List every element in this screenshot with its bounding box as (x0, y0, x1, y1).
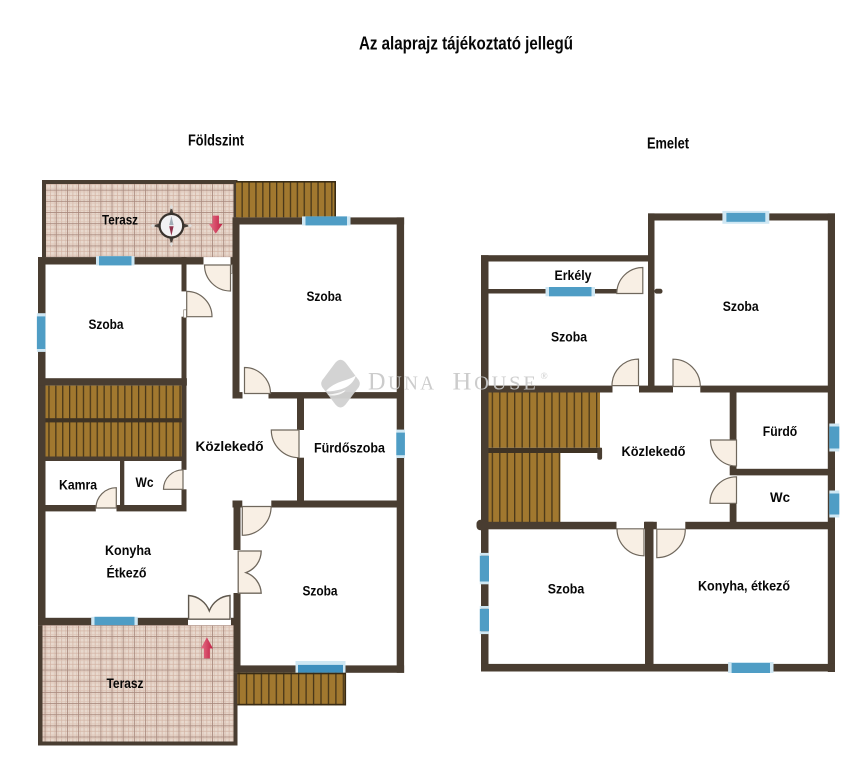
svg-text:HOUSE: HOUSE (453, 367, 539, 396)
svg-text:Kamra: Kamra (59, 477, 97, 492)
svg-text:Szoba: Szoba (307, 289, 342, 304)
svg-text:Szoba: Szoba (723, 299, 759, 314)
svg-text:Szoba: Szoba (551, 330, 587, 345)
svg-text:Szoba: Szoba (89, 317, 124, 332)
svg-text:Közlekedő: Közlekedő (622, 444, 686, 459)
svg-text:Terasz: Terasz (102, 213, 138, 228)
svg-text:Fürdőszoba: Fürdőszoba (314, 440, 385, 455)
svg-text:Földszint: Földszint (188, 133, 244, 150)
svg-text:Közlekedő: Közlekedő (196, 439, 264, 454)
svg-text:Emelet: Emelet (647, 135, 689, 152)
svg-text:Terasz: Terasz (107, 676, 144, 691)
svg-text:Konyha, étkező: Konyha, étkező (698, 578, 790, 593)
svg-text:®: ® (541, 371, 548, 382)
svg-text:Wc: Wc (770, 489, 790, 505)
svg-text:Erkély: Erkély (555, 268, 592, 283)
svg-text:Étkező: Étkező (107, 566, 147, 581)
svg-text:Konyha: Konyha (105, 543, 151, 558)
svg-text:Szoba: Szoba (303, 583, 338, 598)
svg-text:Wc: Wc (136, 475, 154, 490)
svg-text:Fürdő: Fürdő (763, 424, 798, 439)
svg-text:Szoba: Szoba (548, 581, 585, 596)
svg-text:Az alaprajz tájékoztató jelleg: Az alaprajz tájékoztató jellegű (359, 34, 573, 54)
